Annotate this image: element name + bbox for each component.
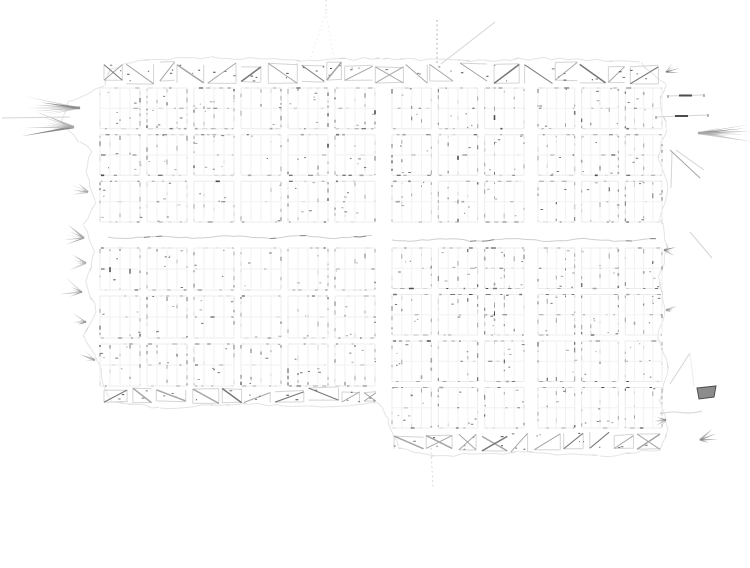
ink-marks — [222, 64, 605, 451]
hachure-ray — [72, 255, 86, 264]
hachure-ray — [72, 313, 87, 323]
ink-marks — [100, 88, 662, 428]
scanned-plat-map-page — [0, 0, 750, 568]
offmap-road — [326, 12, 334, 58]
hachure-ray — [65, 277, 83, 292]
offmap-road — [431, 448, 433, 487]
hachure-ray — [666, 71, 679, 73]
hachure-ray — [24, 96, 80, 109]
ink-marks — [108, 235, 656, 241]
ink-marks — [133, 62, 660, 451]
ink-marks — [100, 88, 662, 428]
ink-marks — [101, 110, 598, 341]
ink-marks — [100, 88, 662, 428]
flag-blob — [697, 386, 716, 399]
ink-marks — [100, 88, 643, 428]
offmap-road — [310, 12, 326, 60]
ink-marks — [100, 89, 662, 428]
ink-marks — [690, 353, 694, 386]
ink-marks — [675, 96, 692, 117]
city-blocks — [100, 88, 662, 428]
map-canvas — [0, 0, 750, 568]
ink-marks — [115, 88, 663, 411]
curl-line — [660, 411, 702, 414]
ink-marks — [100, 88, 662, 428]
ink-marks — [100, 88, 662, 428]
ink-marks — [100, 88, 662, 428]
main-street-wave — [108, 235, 656, 241]
